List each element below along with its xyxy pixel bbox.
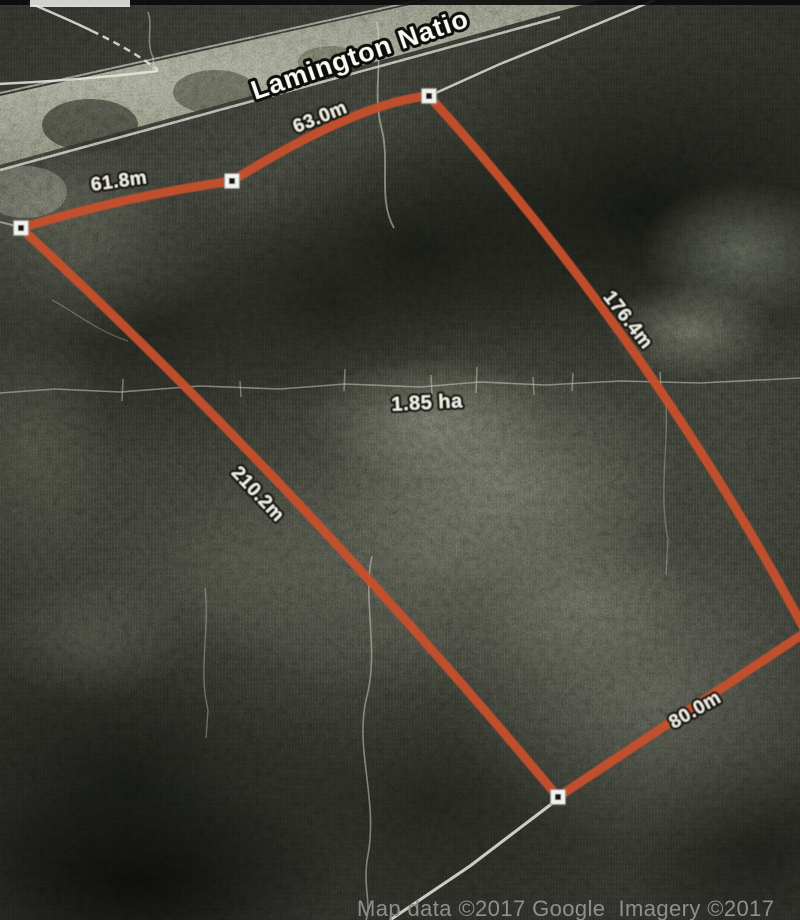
attribution-text: Map data ©2017 Google Imagery ©2017 (357, 896, 774, 920)
scan-edge-white-patch (30, 0, 130, 7)
vertex-marker-dot (426, 93, 432, 99)
vertex-marker-dot (18, 225, 24, 231)
map-overlay: 61.8m 63.0m 176.4m 210.2m 80.0m 1.85 ha … (0, 0, 800, 920)
area-label: 1.85 ha (391, 390, 464, 416)
noise-overlay-fine (0, 0, 800, 920)
vertex-marker-south[interactable] (551, 790, 566, 805)
vertex-marker-northeast[interactable] (422, 89, 437, 104)
vertex-marker-dot (555, 794, 561, 800)
vertex-marker-north[interactable] (225, 174, 240, 189)
map-canvas[interactable]: 61.8m 63.0m 176.4m 210.2m 80.0m 1.85 ha … (0, 0, 800, 920)
vertex-marker-west[interactable] (14, 221, 29, 236)
vertex-marker-dot (229, 178, 235, 184)
